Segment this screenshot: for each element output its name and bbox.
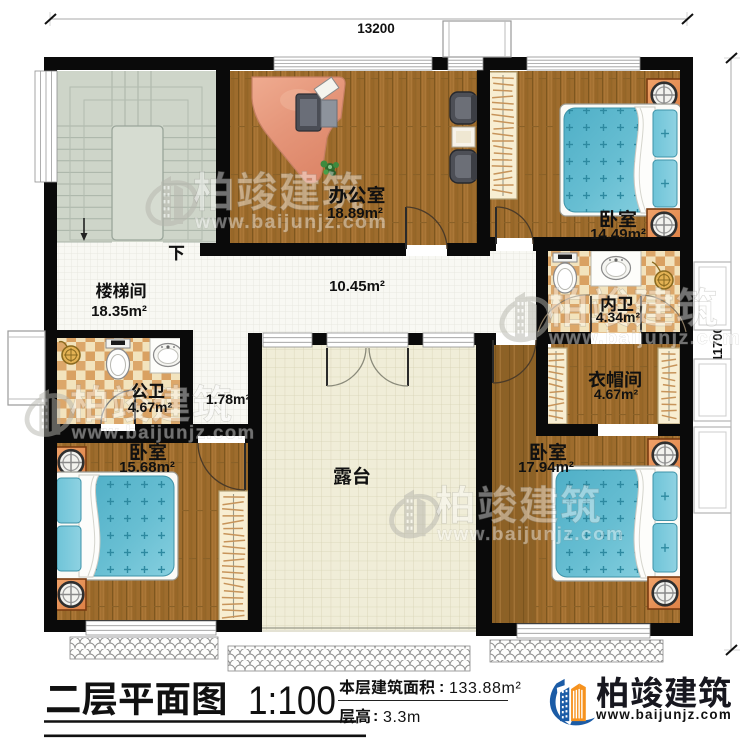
svg-text:www.baijunjz.com: www.baijunjz.com bbox=[595, 707, 732, 722]
svg-text:1.78m²: 1.78m² bbox=[206, 391, 251, 407]
svg-text::: : bbox=[373, 708, 378, 725]
svg-text:www.baijunjz.com: www.baijunjz.com bbox=[548, 327, 741, 349]
svg-text:13200: 13200 bbox=[357, 21, 395, 36]
svg-text:133.88m²: 133.88m² bbox=[449, 680, 521, 697]
svg-text:1:100: 1:100 bbox=[248, 679, 336, 723]
svg-text:4.67m²: 4.67m² bbox=[594, 386, 639, 402]
svg-text:4.67m²: 4.67m² bbox=[128, 399, 173, 415]
svg-text:www.baijunjz.com: www.baijunjz.com bbox=[71, 422, 256, 443]
svg-text:18.89m²: 18.89m² bbox=[327, 205, 383, 222]
svg-text:3.3m: 3.3m bbox=[383, 709, 421, 726]
svg-text:15.68m²: 15.68m² bbox=[119, 459, 175, 476]
svg-text:17.94m²: 17.94m² bbox=[518, 459, 574, 476]
svg-text:18.35m²: 18.35m² bbox=[91, 303, 147, 320]
svg-text:www.baijunjz.com: www.baijunjz.com bbox=[436, 524, 624, 545]
svg-text:4.34m²: 4.34m² bbox=[596, 309, 641, 325]
svg-text:10.45m²: 10.45m² bbox=[329, 278, 385, 295]
svg-text::: : bbox=[439, 679, 444, 696]
svg-text:14.49m²: 14.49m² bbox=[590, 226, 646, 243]
